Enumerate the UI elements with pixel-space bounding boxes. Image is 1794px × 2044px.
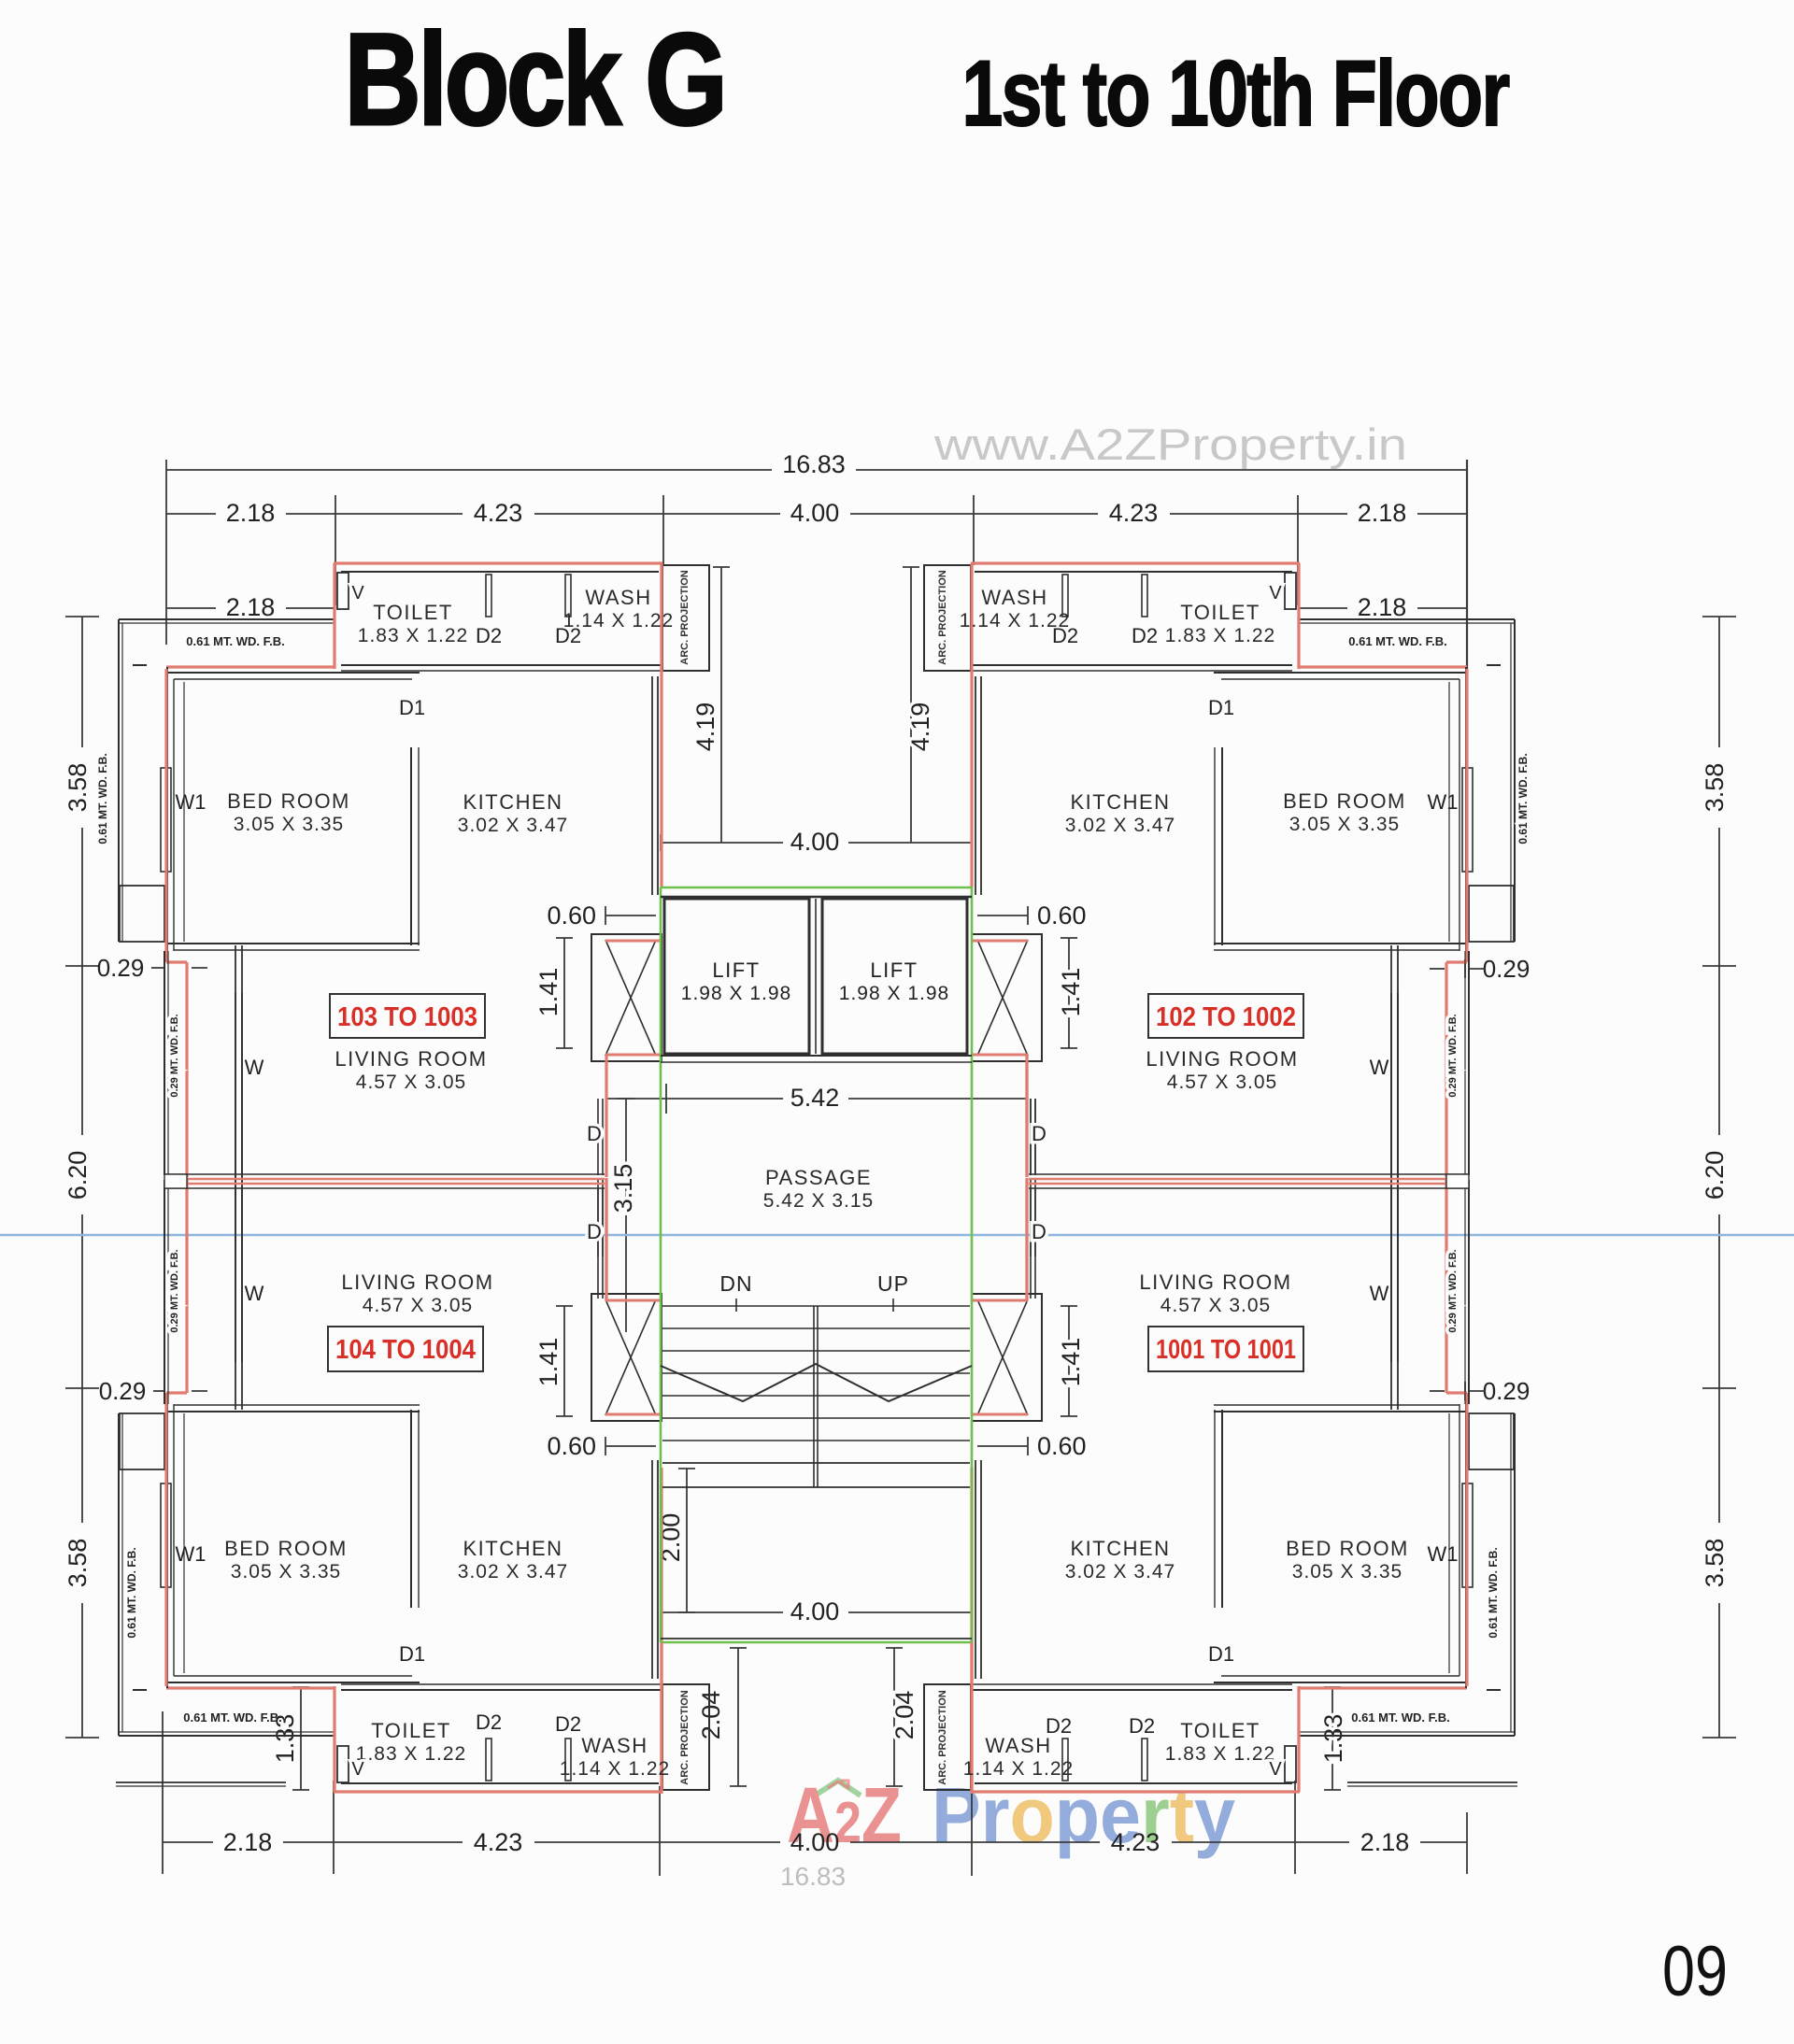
svg-text:1.83 X 1.22: 1.83 X 1.22 [1165,625,1275,646]
svg-text:BED ROOM: BED ROOM [1283,789,1406,813]
svg-text:D2: D2 [1132,624,1158,647]
svg-text:2.18: 2.18 [1360,1828,1410,1856]
svg-text:0.60: 0.60 [547,1432,596,1460]
svg-text:BED ROOM: BED ROOM [227,789,350,813]
svg-text:0.61 MT. WD. F.B.: 0.61 MT. WD. F.B. [186,634,284,648]
svg-text:2.18: 2.18 [223,1828,273,1856]
svg-text:1.41: 1.41 [1057,1338,1085,1387]
svg-text:BED ROOM: BED ROOM [1286,1537,1409,1560]
svg-text:4.00: 4.00 [790,1828,840,1856]
svg-text:3.05 X 3.35: 3.05 X 3.35 [234,814,344,835]
svg-text:Property: Property [932,1771,1235,1859]
svg-text:KITCHEN: KITCHEN [1070,790,1170,814]
svg-text:D1: D1 [1208,1642,1234,1666]
svg-text:3.05 X 3.35: 3.05 X 3.35 [1292,1561,1402,1583]
svg-text:ARC. PROJECTION: ARC. PROJECTION [679,1690,691,1785]
svg-text:3.05 X 3.35: 3.05 X 3.35 [1289,814,1400,835]
svg-text:1001 TO 1001: 1001 TO 1001 [1156,1335,1296,1365]
svg-text:103 TO 1003: 103 TO 1003 [337,1002,477,1032]
svg-text:D1: D1 [1208,696,1234,719]
svg-text:2.18: 2.18 [1358,593,1407,621]
svg-text:0.60: 0.60 [1037,1432,1087,1460]
svg-text:1.83 X 1.22: 1.83 X 1.22 [358,625,468,646]
svg-text:TOILET: TOILET [373,601,453,624]
svg-text:WASH: WASH [981,586,1047,609]
svg-text:0.29: 0.29 [99,1377,147,1405]
svg-text:www.A2ZProperty.in: www.A2ZProperty.in [933,419,1407,469]
svg-text:2.18: 2.18 [1358,499,1407,527]
svg-text:6.20: 6.20 [1701,1151,1729,1200]
svg-text:D2: D2 [1046,1714,1072,1738]
svg-text:0.29 MT. WD. F.B.: 0.29 MT. WD. F.B. [169,1014,180,1097]
svg-text:0.61 MT. WD. F.B.: 0.61 MT. WD. F.B. [183,1710,281,1725]
svg-text:0.61 MT. WD. F.B.: 0.61 MT. WD. F.B. [1487,1547,1500,1638]
svg-text:5.42: 5.42 [790,1084,840,1112]
svg-text:LIVING ROOM: LIVING ROOM [1139,1270,1291,1294]
svg-text:BED ROOM: BED ROOM [224,1537,348,1560]
svg-text:4.57 X 3.05: 4.57 X 3.05 [363,1295,473,1316]
svg-text:W1: W1 [176,1542,206,1566]
svg-text:2.04: 2.04 [890,1691,918,1740]
svg-text:ARC. PROJECTION: ARC. PROJECTION [937,570,948,665]
svg-text:3.58: 3.58 [1701,763,1729,813]
svg-text:W1: W1 [1428,1542,1459,1566]
svg-text:V: V [351,583,364,603]
svg-text:W1: W1 [176,790,206,814]
svg-text:1.83 X 1.22: 1.83 X 1.22 [1165,1743,1275,1765]
svg-text:D: D [1032,1220,1046,1243]
svg-text:LIVING ROOM: LIVING ROOM [341,1270,493,1294]
svg-text:LIFT: LIFT [870,958,918,982]
svg-text:3.58: 3.58 [64,763,92,813]
svg-text:4.23: 4.23 [1111,1828,1160,1856]
svg-text:2.18: 2.18 [226,499,276,527]
svg-text:4.00: 4.00 [790,828,840,856]
svg-text:D1: D1 [399,1642,425,1666]
svg-text:W: W [245,1056,264,1079]
svg-text:ARC. PROJECTION: ARC. PROJECTION [937,1690,948,1785]
svg-text:16.83: 16.83 [780,1862,846,1891]
svg-text:1.83 X 1.22: 1.83 X 1.22 [356,1743,466,1765]
svg-text:D2: D2 [555,624,581,647]
svg-text:4.19: 4.19 [906,703,934,752]
svg-text:0.29 MT. WD. F.B.: 0.29 MT. WD. F.B. [1447,1014,1459,1097]
svg-text:D: D [1032,1122,1046,1145]
svg-text:D: D [587,1220,602,1243]
svg-text:LIVING ROOM: LIVING ROOM [1146,1047,1298,1071]
svg-text:3.02 X 3.47: 3.02 X 3.47 [458,1561,568,1583]
svg-text:0.61 MT. WD. F.B.: 0.61 MT. WD. F.B. [1351,1710,1449,1725]
svg-text:3.02 X 3.47: 3.02 X 3.47 [1065,1561,1175,1583]
svg-text:4.23: 4.23 [474,1828,523,1856]
svg-text:V: V [351,1759,364,1780]
svg-text:W: W [245,1282,264,1305]
svg-text:16.83: 16.83 [782,450,846,478]
svg-text:2.18: 2.18 [226,593,276,621]
svg-text:KITCHEN: KITCHEN [1070,1537,1170,1560]
svg-text:1.98 X 1.98: 1.98 X 1.98 [681,983,791,1004]
svg-text:4.19: 4.19 [691,703,719,752]
svg-text:5.42 X 3.15: 5.42 X 3.15 [763,1190,874,1212]
svg-text:3.02 X 3.47: 3.02 X 3.47 [458,815,568,836]
svg-text:4.57 X 3.05: 4.57 X 3.05 [1160,1295,1271,1316]
svg-text:D2: D2 [555,1712,581,1736]
svg-text:Block G: Block G [345,6,725,152]
svg-text:3.58: 3.58 [64,1539,92,1588]
svg-text:TOILET: TOILET [1180,1719,1260,1742]
svg-text:KITCHEN: KITCHEN [463,1537,562,1560]
svg-text:0.61 MT. WD. F.B.: 0.61 MT. WD. F.B. [125,1547,138,1638]
svg-text:1.41: 1.41 [534,1338,562,1387]
svg-text:0.61 MT. WD. F.B.: 0.61 MT. WD. F.B. [96,753,109,844]
svg-text:4.57 X 3.05: 4.57 X 3.05 [1167,1072,1277,1093]
svg-text:WASH: WASH [585,586,651,609]
svg-text:1.14 X 1.22: 1.14 X 1.22 [963,1758,1074,1780]
svg-text:4.00: 4.00 [790,499,840,527]
svg-text:0.29 MT. WD. F.B.: 0.29 MT. WD. F.B. [1447,1249,1459,1332]
svg-text:09: 09 [1662,1932,1728,2011]
svg-text:0.29: 0.29 [97,954,145,982]
svg-text:ARC. PROJECTION: ARC. PROJECTION [679,570,691,665]
svg-text:0.61 MT. WD. F.B.: 0.61 MT. WD. F.B. [1348,634,1446,648]
svg-text:V: V [1269,1759,1282,1780]
svg-text:W: W [1370,1056,1389,1079]
svg-text:0.29: 0.29 [1483,955,1531,983]
svg-text:2.04: 2.04 [697,1691,725,1740]
svg-text:D2: D2 [476,1710,502,1734]
svg-text:W: W [1370,1282,1389,1305]
svg-text:4.00: 4.00 [790,1597,840,1625]
svg-text:W1: W1 [1428,790,1459,814]
svg-text:D2: D2 [1052,624,1078,647]
svg-text:D2: D2 [476,624,502,647]
svg-text:3.02 X 3.47: 3.02 X 3.47 [1065,815,1175,836]
svg-text:KITCHEN: KITCHEN [463,790,562,814]
svg-text:0.29: 0.29 [1483,1377,1531,1405]
svg-text:3.05 X 3.35: 3.05 X 3.35 [231,1561,341,1583]
svg-text:4.57 X 3.05: 4.57 X 3.05 [356,1072,466,1093]
svg-text:0.61 MT. WD. F.B.: 0.61 MT. WD. F.B. [1516,753,1530,844]
svg-text:4.23: 4.23 [1109,499,1159,527]
svg-text:102 TO 1002: 102 TO 1002 [1156,1002,1296,1032]
svg-text:1st to 10th Floor: 1st to 10th Floor [962,41,1510,145]
svg-text:V: V [1269,583,1282,603]
svg-text:LIFT: LIFT [712,958,760,982]
svg-text:PASSAGE: PASSAGE [765,1166,872,1189]
svg-text:1.33: 1.33 [1319,1714,1347,1764]
svg-text:UP: UP [877,1271,909,1296]
svg-text:104 TO 1004: 104 TO 1004 [335,1335,476,1365]
svg-text:DN: DN [719,1271,752,1296]
svg-text:0.29 MT. WD. F.B.: 0.29 MT. WD. F.B. [169,1249,180,1332]
svg-text:WASH: WASH [985,1734,1051,1757]
svg-text:0.60: 0.60 [547,901,596,930]
svg-text:3.58: 3.58 [1701,1539,1729,1588]
svg-text:D: D [587,1122,602,1145]
svg-text:1.41: 1.41 [534,968,562,1017]
svg-text:1.98 X 1.98: 1.98 X 1.98 [839,983,949,1004]
svg-text:D1: D1 [399,696,425,719]
svg-text:TOILET: TOILET [1180,601,1260,624]
svg-text:TOILET: TOILET [371,1719,451,1742]
svg-text:D2: D2 [1129,1714,1155,1738]
svg-text:6.20: 6.20 [64,1151,92,1200]
svg-text:4.23: 4.23 [474,499,523,527]
svg-text:3.15: 3.15 [609,1164,637,1214]
svg-text:LIVING ROOM: LIVING ROOM [335,1047,487,1071]
svg-text:0.60: 0.60 [1037,901,1087,930]
svg-text:WASH: WASH [581,1734,648,1757]
svg-text:1.14 X 1.22: 1.14 X 1.22 [560,1758,670,1780]
svg-text:1.41: 1.41 [1057,968,1085,1017]
